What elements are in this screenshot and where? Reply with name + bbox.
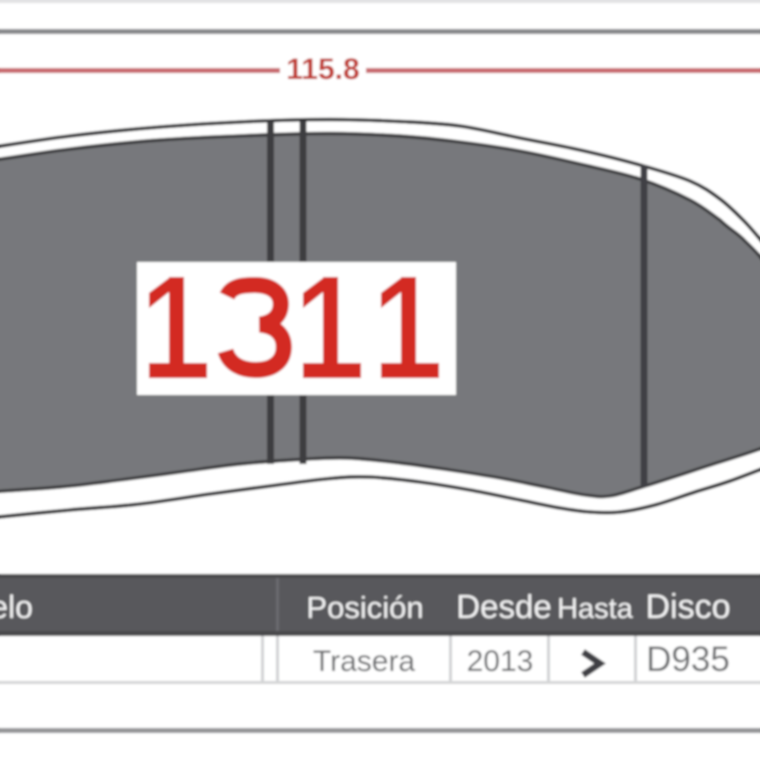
svg-text:Disco: Disco [645,588,730,626]
svg-text:2013: 2013 [467,645,534,678]
svg-text:Desde: Desde [456,588,551,625]
svg-text:D935: D935 [646,640,730,679]
svg-text:Hasta: Hasta [557,593,634,625]
svg-text:Posición: Posición [306,590,423,625]
svg-text:Trasera: Trasera [313,645,416,678]
svg-text:115.8: 115.8 [286,53,359,86]
svg-text:Modelo: Modelo [0,589,33,625]
